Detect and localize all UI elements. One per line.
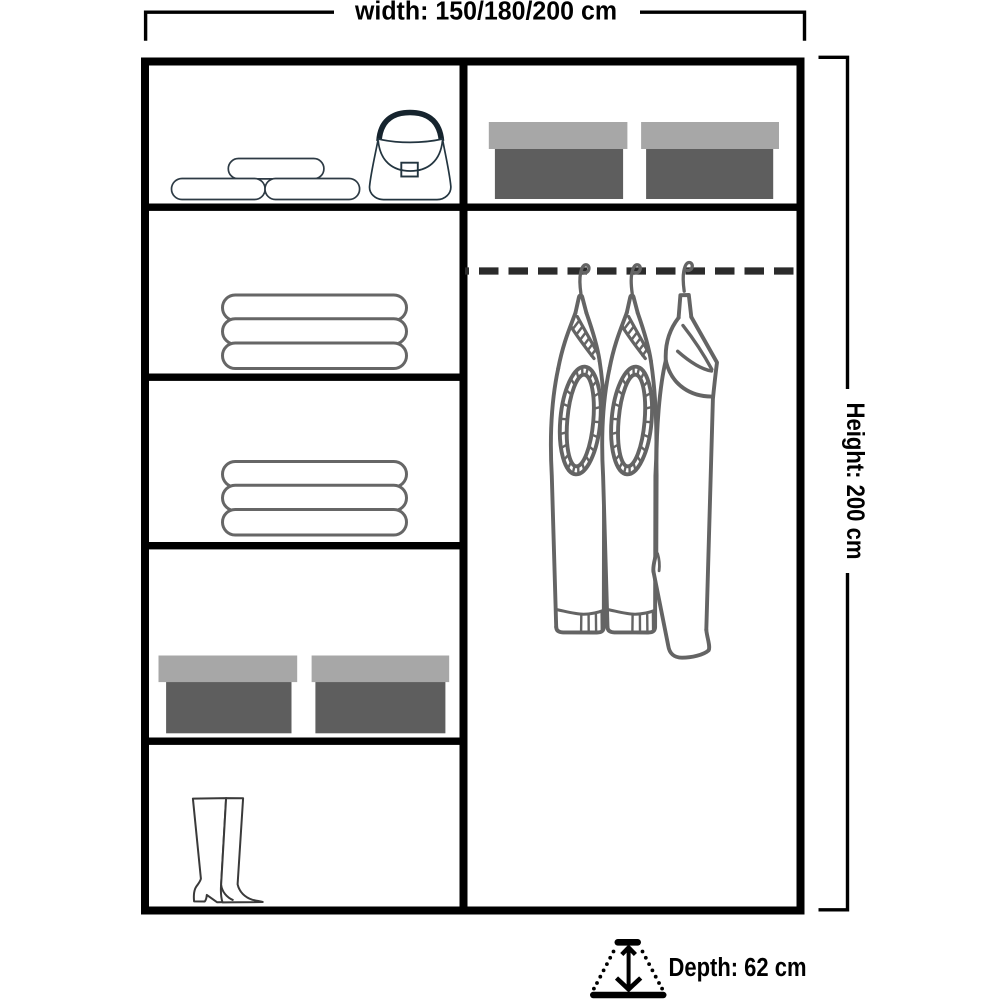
- svg-text:Height: 200 cm: Height: 200 cm: [841, 403, 869, 560]
- svg-text:Depth: 62 cm: Depth: 62 cm: [669, 954, 807, 982]
- svg-text:width: 150/180/200 cm: width: 150/180/200 cm: [354, 0, 617, 26]
